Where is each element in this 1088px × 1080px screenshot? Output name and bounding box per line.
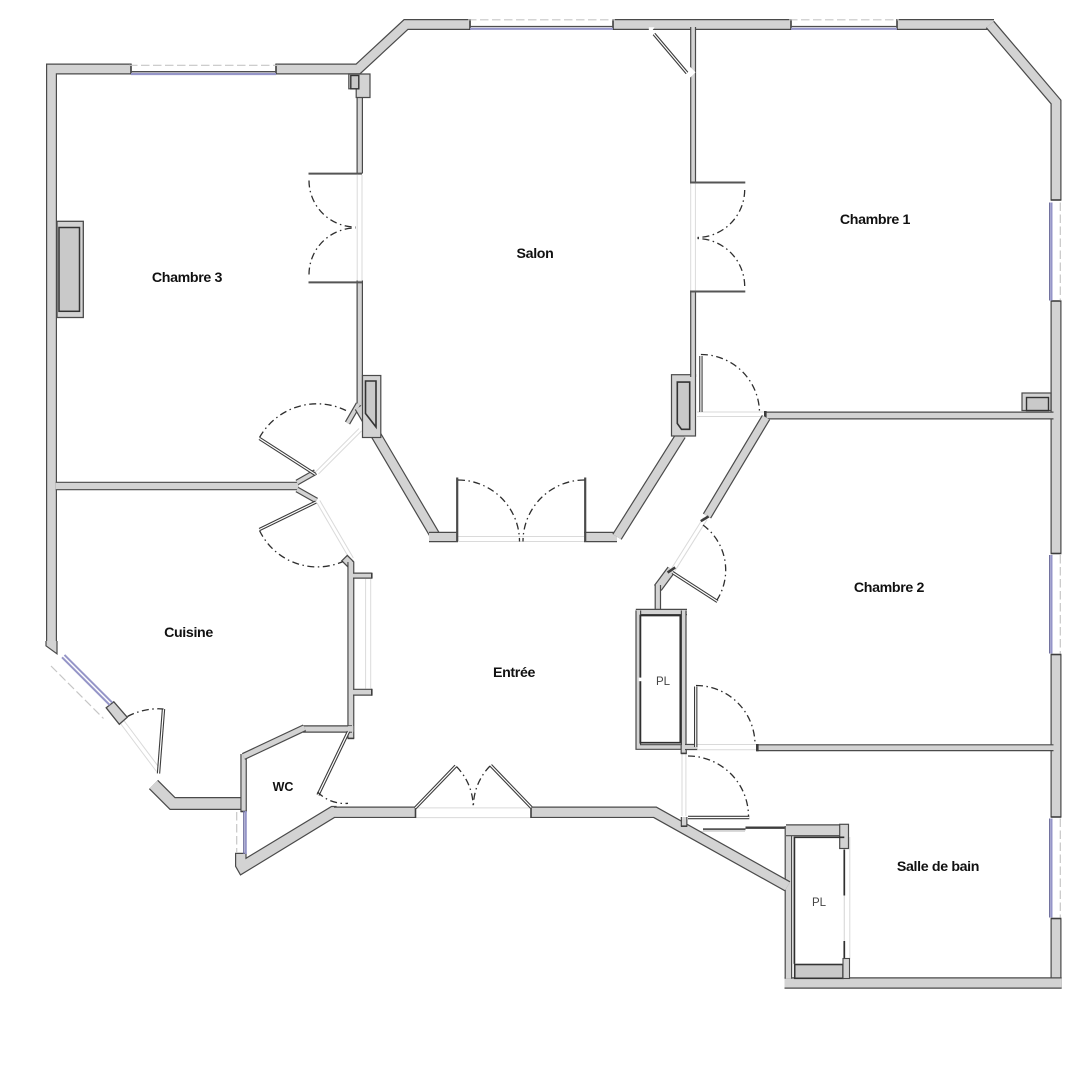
svg-text:Cuisine: Cuisine <box>164 625 213 641</box>
svg-text:WC: WC <box>273 780 294 794</box>
svg-text:Chambre 2: Chambre 2 <box>854 580 925 596</box>
svg-text:PL: PL <box>656 676 671 688</box>
svg-text:Salle de bain: Salle de bain <box>897 859 979 875</box>
svg-text:Salon: Salon <box>517 246 554 262</box>
svg-text:Chambre 3: Chambre 3 <box>152 270 223 286</box>
svg-text:Entrée: Entrée <box>493 665 536 681</box>
svg-text:PL: PL <box>812 897 827 909</box>
svg-text:Chambre 1: Chambre 1 <box>840 212 911 228</box>
